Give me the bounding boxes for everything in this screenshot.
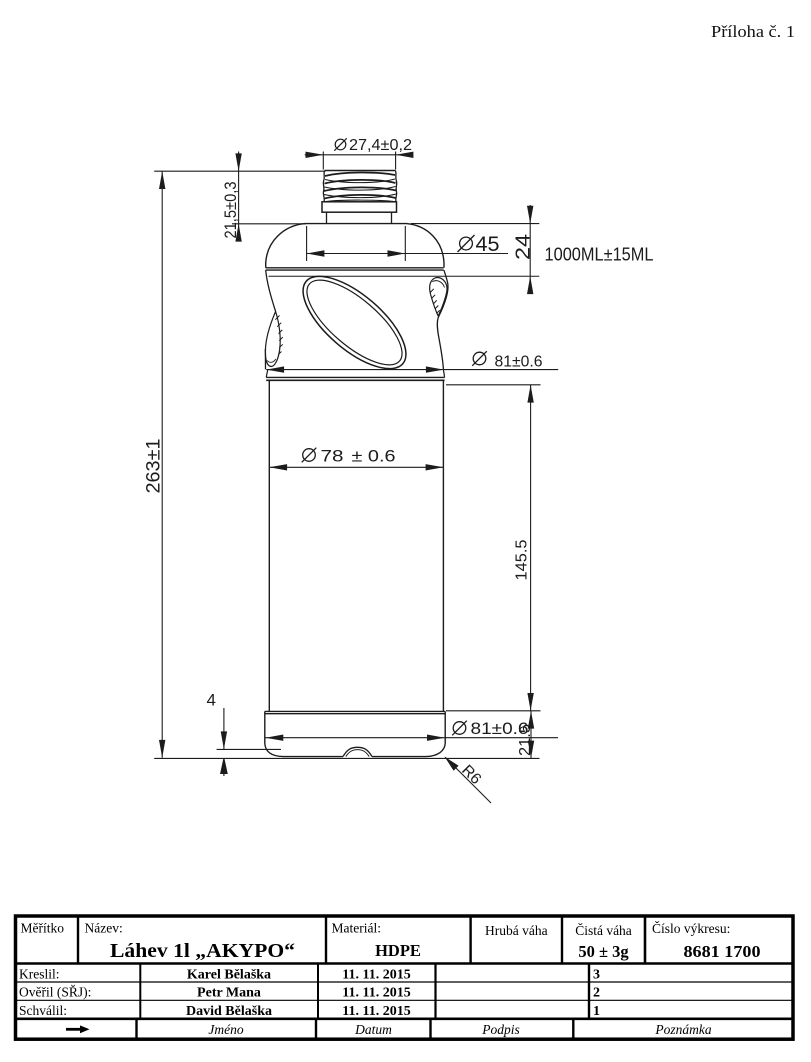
svg-text:Název:: Název: xyxy=(85,921,123,936)
svg-text:Hrubá váha: Hrubá váha xyxy=(485,923,548,938)
svg-text:Poznámka: Poznámka xyxy=(654,1022,711,1037)
svg-text:145.5: 145.5 xyxy=(514,539,531,580)
svg-text:1: 1 xyxy=(593,1004,600,1019)
svg-text:HDPE: HDPE xyxy=(375,941,421,960)
svg-text:Měřítko: Měřítko xyxy=(21,921,65,936)
svg-text:45: 45 xyxy=(476,233,500,256)
svg-text:8681 1700: 8681 1700 xyxy=(684,942,761,961)
svg-text:21,5±0,3: 21,5±0,3 xyxy=(221,182,240,239)
svg-text:Karel Bělaška: Karel Bělaška xyxy=(187,967,271,982)
svg-text:Příloha č. 1: Příloha č. 1 xyxy=(711,22,795,41)
svg-text:3: 3 xyxy=(593,967,600,982)
svg-text:263±1: 263±1 xyxy=(144,439,165,494)
svg-text:4: 4 xyxy=(207,691,216,710)
svg-text:Jméno: Jméno xyxy=(208,1022,243,1037)
svg-text:David Bělaška: David Bělaška xyxy=(186,1004,272,1019)
svg-text:11. 11. 2015: 11. 11. 2015 xyxy=(342,986,410,1001)
svg-text:78: 78 xyxy=(321,447,344,466)
svg-text:Láhev 1l „AKYPO“: Láhev 1l „AKYPO“ xyxy=(110,940,295,962)
svg-text:21.5: 21.5 xyxy=(517,724,534,756)
svg-text:Datum: Datum xyxy=(354,1022,392,1037)
svg-text:R6: R6 xyxy=(458,762,484,788)
svg-text:11. 11. 2015: 11. 11. 2015 xyxy=(342,967,410,982)
svg-text:Čistá váha: Čistá váha xyxy=(575,923,632,938)
svg-text:2: 2 xyxy=(593,986,600,1001)
svg-text:Ověřil (SŘJ):: Ověřil (SŘJ): xyxy=(19,985,91,1000)
svg-text:Číslo výkresu:: Číslo výkresu: xyxy=(652,921,730,936)
svg-text:81±0.6: 81±0.6 xyxy=(495,354,543,371)
svg-text:Schválil:: Schválil: xyxy=(19,1003,67,1018)
svg-text:50 ± 3g: 50 ± 3g xyxy=(578,942,629,961)
svg-text:Petr Mana: Petr Mana xyxy=(197,986,261,1001)
svg-text:Kreslil:: Kreslil: xyxy=(19,966,60,981)
svg-text:1000ML±15ML: 1000ML±15ML xyxy=(545,244,654,264)
svg-text:Podpis: Podpis xyxy=(481,1022,520,1037)
svg-text:24: 24 xyxy=(513,234,535,260)
svg-text:11. 11. 2015: 11. 11. 2015 xyxy=(342,1004,410,1019)
svg-text:27,4±0,2: 27,4±0,2 xyxy=(349,137,412,154)
svg-text:Materiál:: Materiál: xyxy=(332,921,381,936)
svg-text:± 0.6: ± 0.6 xyxy=(352,447,396,466)
